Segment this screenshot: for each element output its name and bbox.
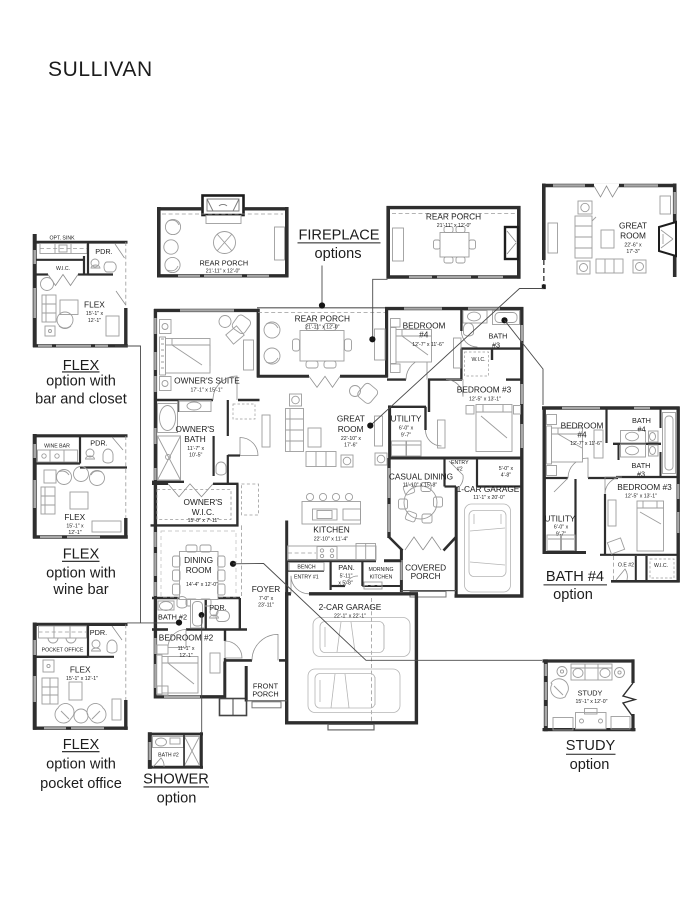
svg-text:PAN.: PAN. [338,563,355,572]
svg-text:PORCH: PORCH [252,690,278,699]
svg-text:12'-5" x 13'-1": 12'-5" x 13'-1" [625,494,657,500]
svg-text:OWNER'S: OWNER'S [176,424,215,434]
svg-text:#3: #3 [492,341,500,350]
svg-text:UTILITY: UTILITY [545,514,576,524]
svg-text:21'-11" x 12'-0": 21'-11" x 12'-0" [437,223,472,229]
svg-text:REAR PORCH: REAR PORCH [199,259,248,268]
svg-text:5'-0" x: 5'-0" x [499,466,514,472]
svg-text:wine bar: wine bar [52,582,108,598]
svg-text:15'-1" x: 15'-1" x [66,523,84,529]
svg-text:option: option [157,791,197,807]
svg-text:15'-1" x: 15'-1" x [86,311,104,317]
svg-text:22'-1" x 22'-1": 22'-1" x 22'-1" [334,614,366,620]
svg-text:FIREPLACE: FIREPLACE [298,228,379,244]
svg-text:12'-1": 12'-1" [179,653,192,659]
svg-text:GREAT: GREAT [337,414,365,424]
svg-text:15'-1" x 12'-0": 15'-1" x 12'-0" [576,699,608,705]
svg-text:PDR.: PDR. [95,247,112,256]
svg-text:22'-6" x: 22'-6" x [624,243,642,249]
svg-text:17'-3": 17'-3" [626,249,639,255]
svg-text:SHOWER: SHOWER [143,772,209,788]
svg-text:FLEX: FLEX [84,300,105,310]
svg-text:4'-8": 4'-8" [501,473,511,479]
svg-text:2-CAR GARAGE: 2-CAR GARAGE [319,602,382,612]
svg-text:FLEX: FLEX [63,737,100,753]
svg-text:ROOM: ROOM [186,565,212,575]
svg-text:#2: #2 [457,467,463,473]
svg-text:11'-7" x: 11'-7" x [187,446,204,452]
svg-text:14'-4" x 12'-0": 14'-4" x 12'-0" [186,582,218,588]
svg-text:option: option [553,587,593,603]
svg-text:KITCHEN: KITCHEN [313,525,349,535]
svg-text:22'-10" x 11'-4": 22'-10" x 11'-4" [314,537,349,543]
svg-text:6'-0" x: 6'-0" x [554,525,569,531]
svg-text:9'-7": 9'-7" [401,432,411,438]
svg-text:#4: #4 [637,425,645,434]
svg-text:W.I.C.: W.I.C. [654,563,668,569]
svg-text:BEDROOM #3: BEDROOM #3 [617,482,672,492]
svg-text:REAR PORCH: REAR PORCH [426,212,481,222]
svg-text:BATH: BATH [489,332,508,341]
svg-text:STUDY: STUDY [566,738,616,754]
svg-text:11'-10" x 15'-8": 11'-10" x 15'-8" [403,483,438,489]
svg-text:11'-1" x: 11'-1" x [178,646,195,652]
svg-text:ROOM: ROOM [338,424,364,434]
svg-text:BATH: BATH [184,434,206,444]
svg-text:OWNER'S SUITE: OWNER'S SUITE [174,376,240,386]
svg-text:FLEX: FLEX [63,546,100,562]
svg-text:UTILITY: UTILITY [391,414,422,424]
svg-text:ROOM: ROOM [620,231,646,241]
svg-text:BEDROOM #2: BEDROOM #2 [159,633,214,643]
svg-text:12'-1": 12'-1" [88,318,101,324]
svg-text:DINING: DINING [184,555,213,565]
svg-text:W.I.C.: W.I.C. [471,357,485,363]
svg-text:#4: #4 [419,330,429,340]
svg-text:11'-1" x 20'-0": 11'-1" x 20'-0" [473,495,505,501]
svg-text:BATH #2: BATH #2 [158,753,179,759]
svg-text:12'-5" x 13'-1": 12'-5" x 13'-1" [469,396,501,402]
svg-text:5'-11": 5'-11" [340,574,353,580]
svg-text:REAR PORCH: REAR PORCH [295,314,350,324]
svg-text:12'-7" x 11'-6": 12'-7" x 11'-6" [570,441,602,447]
svg-text:PDR.: PDR. [209,603,226,612]
svg-text:15'-0" x 7'-11": 15'-0" x 7'-11" [188,518,220,524]
svg-text:PDR.: PDR. [90,439,107,448]
svg-text:12'-1": 12'-1" [68,530,81,536]
svg-text:STUDY: STUDY [578,689,603,698]
svg-text:23'-11": 23'-11" [258,603,274,609]
svg-text:21'-11" x 12'-0": 21'-11" x 12'-0" [305,325,340,331]
svg-text:GREAT: GREAT [619,221,647,231]
svg-text:option with: option with [46,757,116,773]
svg-text:ENTRY: ENTRY [451,460,469,466]
svg-text:10'-5": 10'-5" [189,453,202,459]
svg-text:BEDROOM #3: BEDROOM #3 [457,385,512,395]
svg-text:BENCH: BENCH [297,564,315,570]
svg-text:W.I.C.: W.I.C. [56,266,70,272]
svg-text:OWNER'S: OWNER'S [184,497,223,507]
svg-text:BATH #2: BATH #2 [158,613,187,622]
svg-text:WINE BAR: WINE BAR [44,444,70,450]
svg-text:22'-10" x: 22'-10" x [341,436,362,442]
svg-text:CASUAL DINING: CASUAL DINING [389,472,453,482]
svg-text:FLEX: FLEX [64,512,85,522]
svg-text:option: option [570,757,610,773]
svg-text:O.E #2: O.E #2 [618,563,634,569]
svg-text:12'-7" x 11'-6": 12'-7" x 11'-6" [412,342,444,348]
svg-text:BATH #4: BATH #4 [546,569,604,585]
svg-text:pocket office: pocket office [40,776,122,792]
svg-text:#4: #4 [577,430,587,440]
svg-text:7'-0" x: 7'-0" x [259,596,274,602]
svg-text:OPT. SINK: OPT. SINK [49,236,75,242]
svg-text:x 5'-8": x 5'-8" [338,580,353,586]
svg-text:FOYER: FOYER [252,584,281,594]
svg-text:ENTRY #1: ENTRY #1 [294,575,319,581]
svg-text:9'-7": 9'-7" [556,532,566,538]
svg-text:6'-0" x: 6'-0" x [399,426,414,432]
svg-text:KITCHEN: KITCHEN [370,575,393,581]
svg-text:MORNING: MORNING [368,567,393,573]
svg-text:POCKET OFFICE: POCKET OFFICE [42,648,84,654]
svg-text:PDR.: PDR. [90,628,107,637]
svg-text:option with: option with [46,566,116,582]
svg-text:PORCH: PORCH [411,571,441,581]
svg-text:bar and closet: bar and closet [35,391,127,407]
svg-text:W.I.C.: W.I.C. [192,507,215,517]
svg-text:21'-11" x 12'-0": 21'-11" x 12'-0" [206,268,241,274]
svg-text:17'-1" x 15'-1": 17'-1" x 15'-1" [191,388,223,394]
svg-text:options: options [314,246,361,262]
svg-text:FLEX: FLEX [70,665,91,675]
svg-text:1-CAR GARAGE: 1-CAR GARAGE [457,484,520,494]
svg-text:17'-6": 17'-6" [344,443,357,449]
svg-text:SULLIVAN: SULLIVAN [48,58,153,81]
svg-text:option with: option with [46,374,116,390]
svg-text:#3: #3 [637,470,645,479]
svg-text:15'-1" x 12'-1": 15'-1" x 12'-1" [66,676,98,682]
